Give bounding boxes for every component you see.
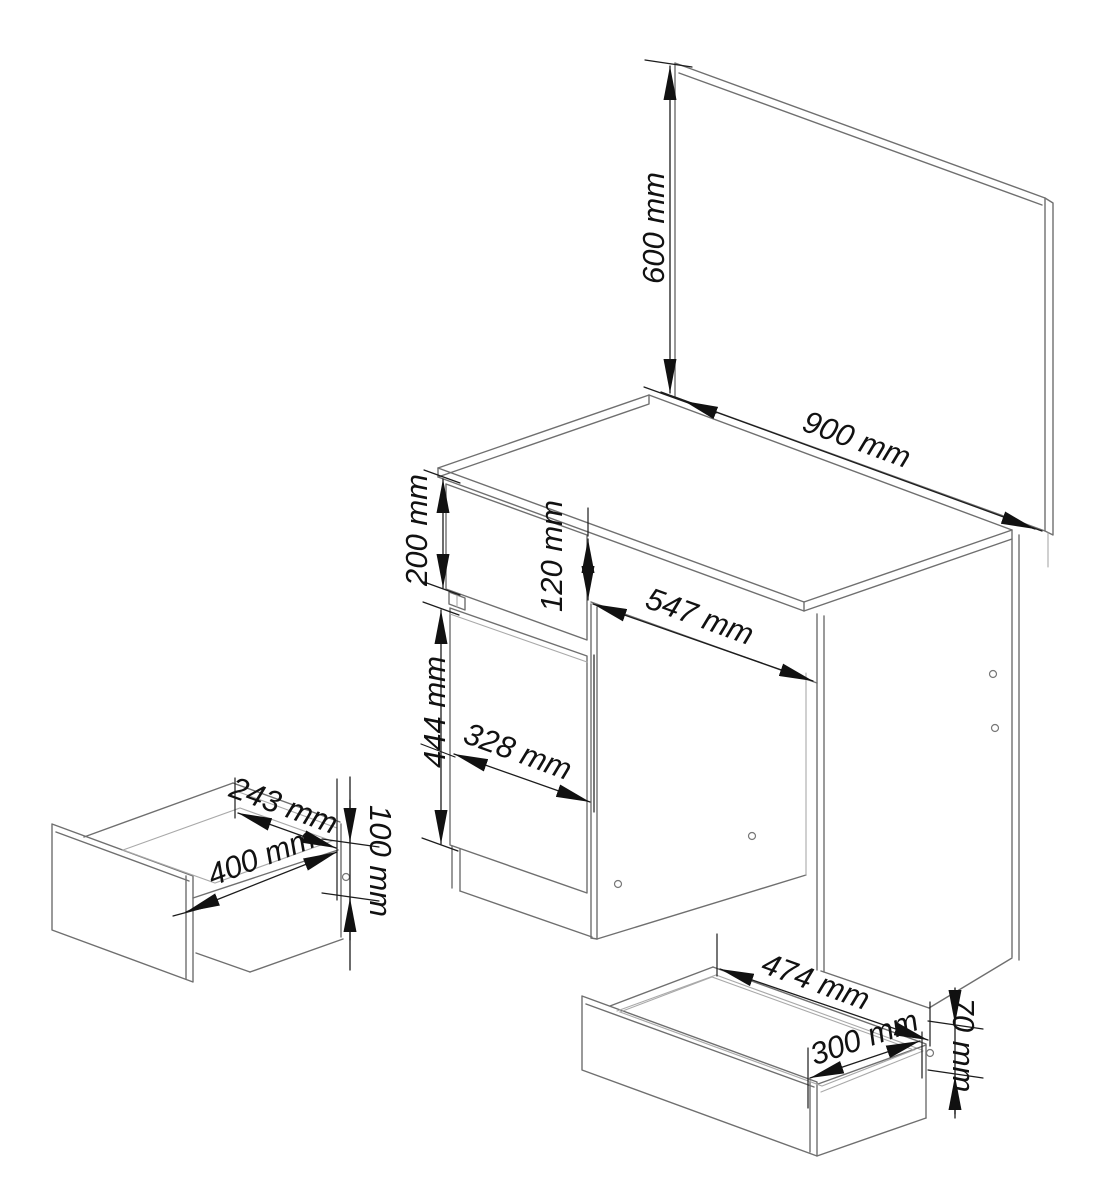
cam-hole bbox=[749, 833, 756, 840]
dim-label-mirror-height: 600 mm bbox=[636, 172, 671, 284]
cam-hole bbox=[615, 881, 622, 888]
large-drawer-exploded bbox=[582, 967, 934, 1156]
cabinet-bottom-receding-edge bbox=[597, 875, 806, 939]
dim-label-door-height: 444 mm bbox=[417, 656, 452, 768]
dimension-large-drawer-height: 70 mm bbox=[928, 988, 983, 1118]
dim-label-large-drawer-height: 70 mm bbox=[946, 998, 981, 1093]
mirror-right-edge bbox=[1045, 198, 1053, 535]
dim-label-drawer-front-height: 200 mm bbox=[399, 474, 434, 587]
cam-hole bbox=[992, 725, 999, 732]
right-side-panel bbox=[817, 535, 1019, 1008]
cam-hole bbox=[990, 671, 997, 678]
dimension-small-drawer-width: 400 mm bbox=[173, 820, 337, 916]
dim-label-large-drawer-width: 474 mm bbox=[757, 946, 874, 1017]
dimension-knee-space-width: 547 mm bbox=[593, 581, 813, 681]
small-drawer-front-panel bbox=[52, 824, 193, 982]
dimension-large-drawer-depth: 300 mm bbox=[805, 1003, 922, 1108]
assembly-dimension-diagram: 600 mm 900 mm 200 mm 120 mm 547 mm 444 m… bbox=[0, 0, 1106, 1200]
dim-label-apron-height: 120 mm bbox=[534, 500, 569, 612]
diagram-page: 600 mm 900 mm 200 mm 120 mm 547 mm 444 m… bbox=[0, 0, 1106, 1200]
cam-hole bbox=[343, 874, 350, 881]
dim-label-large-drawer-depth: 300 mm bbox=[805, 1003, 922, 1073]
cam-hole bbox=[927, 1050, 934, 1057]
dim-label-small-drawer-height: 100 mm bbox=[363, 805, 398, 917]
